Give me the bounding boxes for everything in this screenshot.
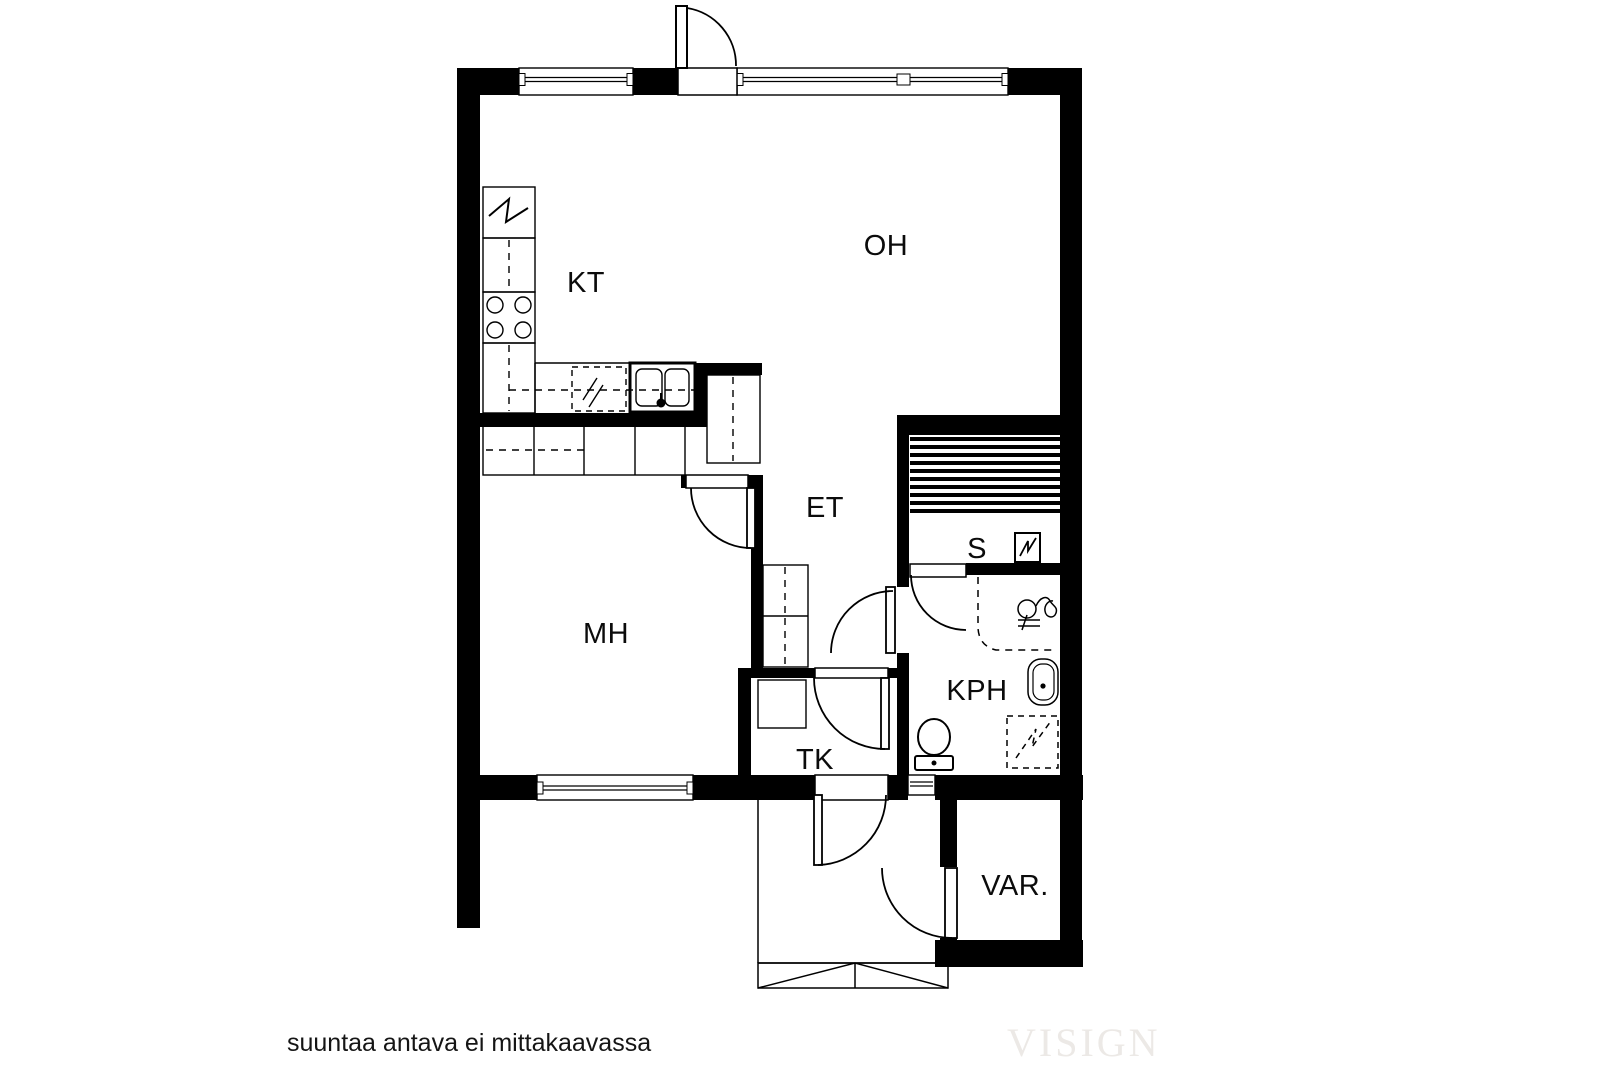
washbasin-icon bbox=[1028, 659, 1058, 705]
room-label-s: S bbox=[967, 533, 987, 565]
bathroom-fixtures bbox=[915, 577, 1058, 770]
vestibule-inner-door bbox=[814, 668, 889, 749]
washing-machine-icon bbox=[1007, 716, 1058, 768]
floor-plan: KT OH MH ET S KPH TK VAR. bbox=[0, 0, 1600, 1067]
entrance-door bbox=[814, 775, 888, 865]
wall-bottom bbox=[888, 775, 908, 800]
room-label-kt: KT bbox=[567, 267, 605, 299]
kitchen-cabinet bbox=[483, 238, 535, 292]
bathroom-vent-window bbox=[908, 775, 935, 795]
entrance-porch bbox=[758, 800, 948, 988]
dishwasher-icon bbox=[572, 367, 626, 411]
storage-door bbox=[882, 868, 957, 938]
wall-storage-bottom bbox=[935, 940, 1083, 967]
room-label-tk: TK bbox=[796, 744, 834, 776]
kitchen-sink-icon bbox=[630, 363, 695, 412]
wall bbox=[738, 678, 751, 775]
wall-bottom bbox=[457, 775, 537, 800]
wall bbox=[633, 68, 678, 95]
sauna-benches bbox=[910, 437, 1060, 513]
wall bbox=[897, 563, 909, 587]
vestibule-closet bbox=[758, 680, 806, 728]
toilet-icon bbox=[915, 719, 953, 770]
wall bbox=[695, 363, 707, 427]
wall-bottom bbox=[693, 775, 815, 800]
walls bbox=[457, 68, 1083, 967]
wall-right-exterior bbox=[1060, 68, 1082, 967]
refrigerator-icon bbox=[483, 187, 535, 238]
main-terrace-door bbox=[676, 6, 737, 95]
sauna-door bbox=[910, 564, 966, 630]
stove-icon bbox=[483, 292, 535, 343]
wall bbox=[897, 653, 909, 775]
bedroom-window bbox=[537, 775, 693, 800]
bedroom-door bbox=[686, 475, 755, 548]
wall bbox=[738, 668, 815, 678]
wall-storage-left bbox=[940, 795, 957, 867]
room-label-oh: OH bbox=[864, 230, 909, 262]
wall-bottom bbox=[935, 775, 1083, 800]
sauna-heater-icon bbox=[1015, 533, 1040, 562]
room-label-var: VAR. bbox=[981, 870, 1049, 902]
disclaimer-note: suuntaa antava ei mittakaavassa bbox=[287, 1029, 651, 1058]
entrance-steps bbox=[758, 963, 948, 988]
hall-tall-cabinet bbox=[707, 375, 760, 463]
top-window-right bbox=[737, 68, 1008, 95]
top-window-left bbox=[519, 68, 633, 95]
room-label-kph: KPH bbox=[946, 675, 1007, 707]
shower-icon bbox=[978, 577, 1057, 650]
visign-watermark: VISIGN bbox=[1007, 1019, 1161, 1066]
room-label-mh: MH bbox=[583, 618, 629, 650]
wall-sauna-left bbox=[897, 415, 909, 575]
bathroom-door bbox=[831, 587, 895, 653]
bedroom-wardrobe bbox=[483, 425, 685, 475]
kitchen-fixtures bbox=[483, 187, 695, 413]
wall-sauna-top bbox=[897, 415, 1082, 435]
room-label-et: ET bbox=[806, 492, 844, 524]
hall-wardrobe bbox=[763, 565, 808, 667]
